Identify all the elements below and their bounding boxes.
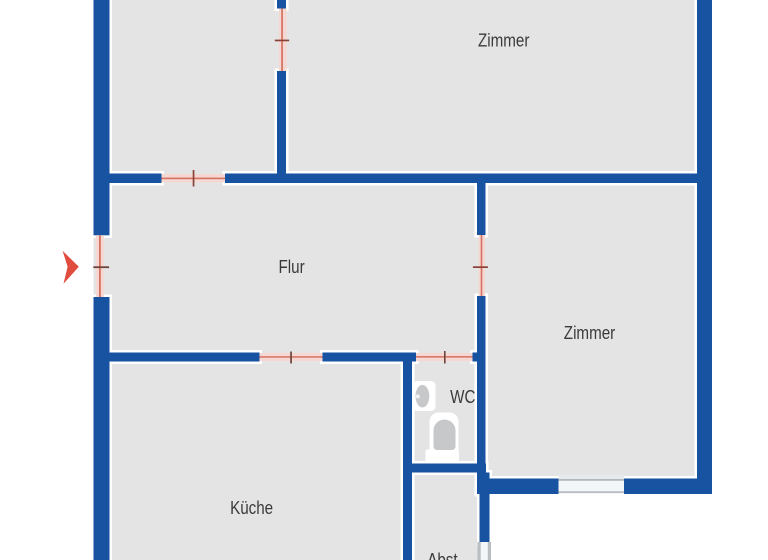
svg-text:Küche: Küche: [230, 498, 273, 519]
svg-text:WC: WC: [450, 387, 475, 408]
svg-text:Abst.: Abst.: [427, 550, 462, 560]
svg-text:Zimmer: Zimmer: [564, 323, 616, 344]
svg-text:Flur: Flur: [279, 257, 305, 278]
svg-text:Zimmer: Zimmer: [478, 30, 530, 51]
